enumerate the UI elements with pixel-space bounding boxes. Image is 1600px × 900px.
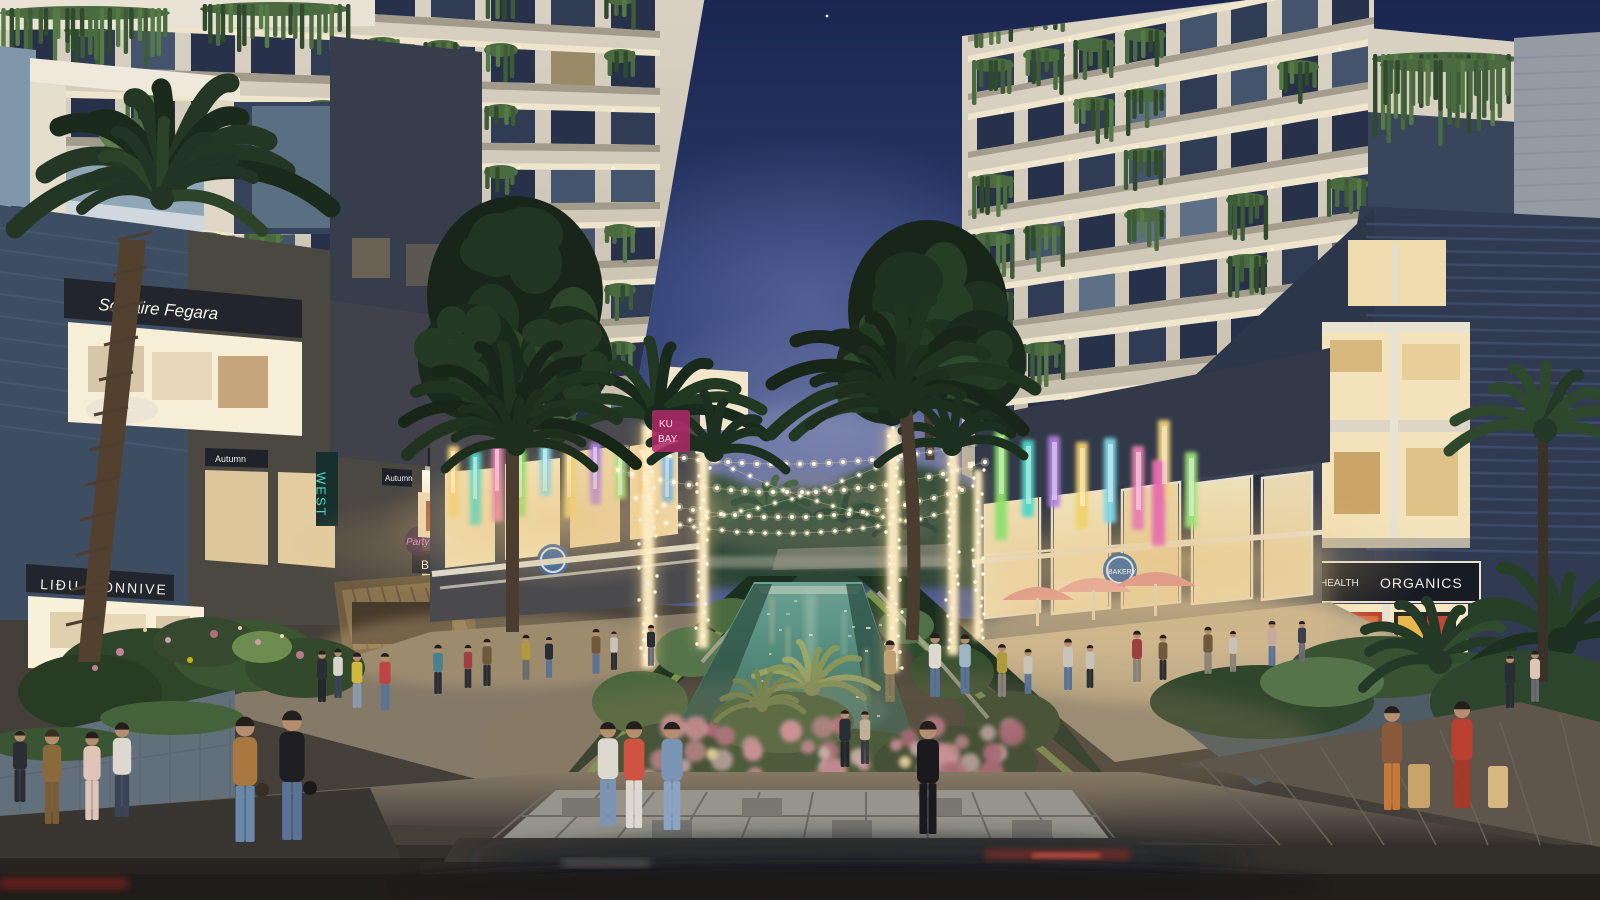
svg-text:BAY: BAY — [658, 434, 678, 445]
svg-text:WEST: WEST — [314, 472, 329, 518]
svg-text:Autumn: Autumn — [385, 474, 413, 483]
svg-text:Autumn: Autumn — [215, 454, 246, 464]
svg-text:KU: KU — [659, 419, 673, 430]
